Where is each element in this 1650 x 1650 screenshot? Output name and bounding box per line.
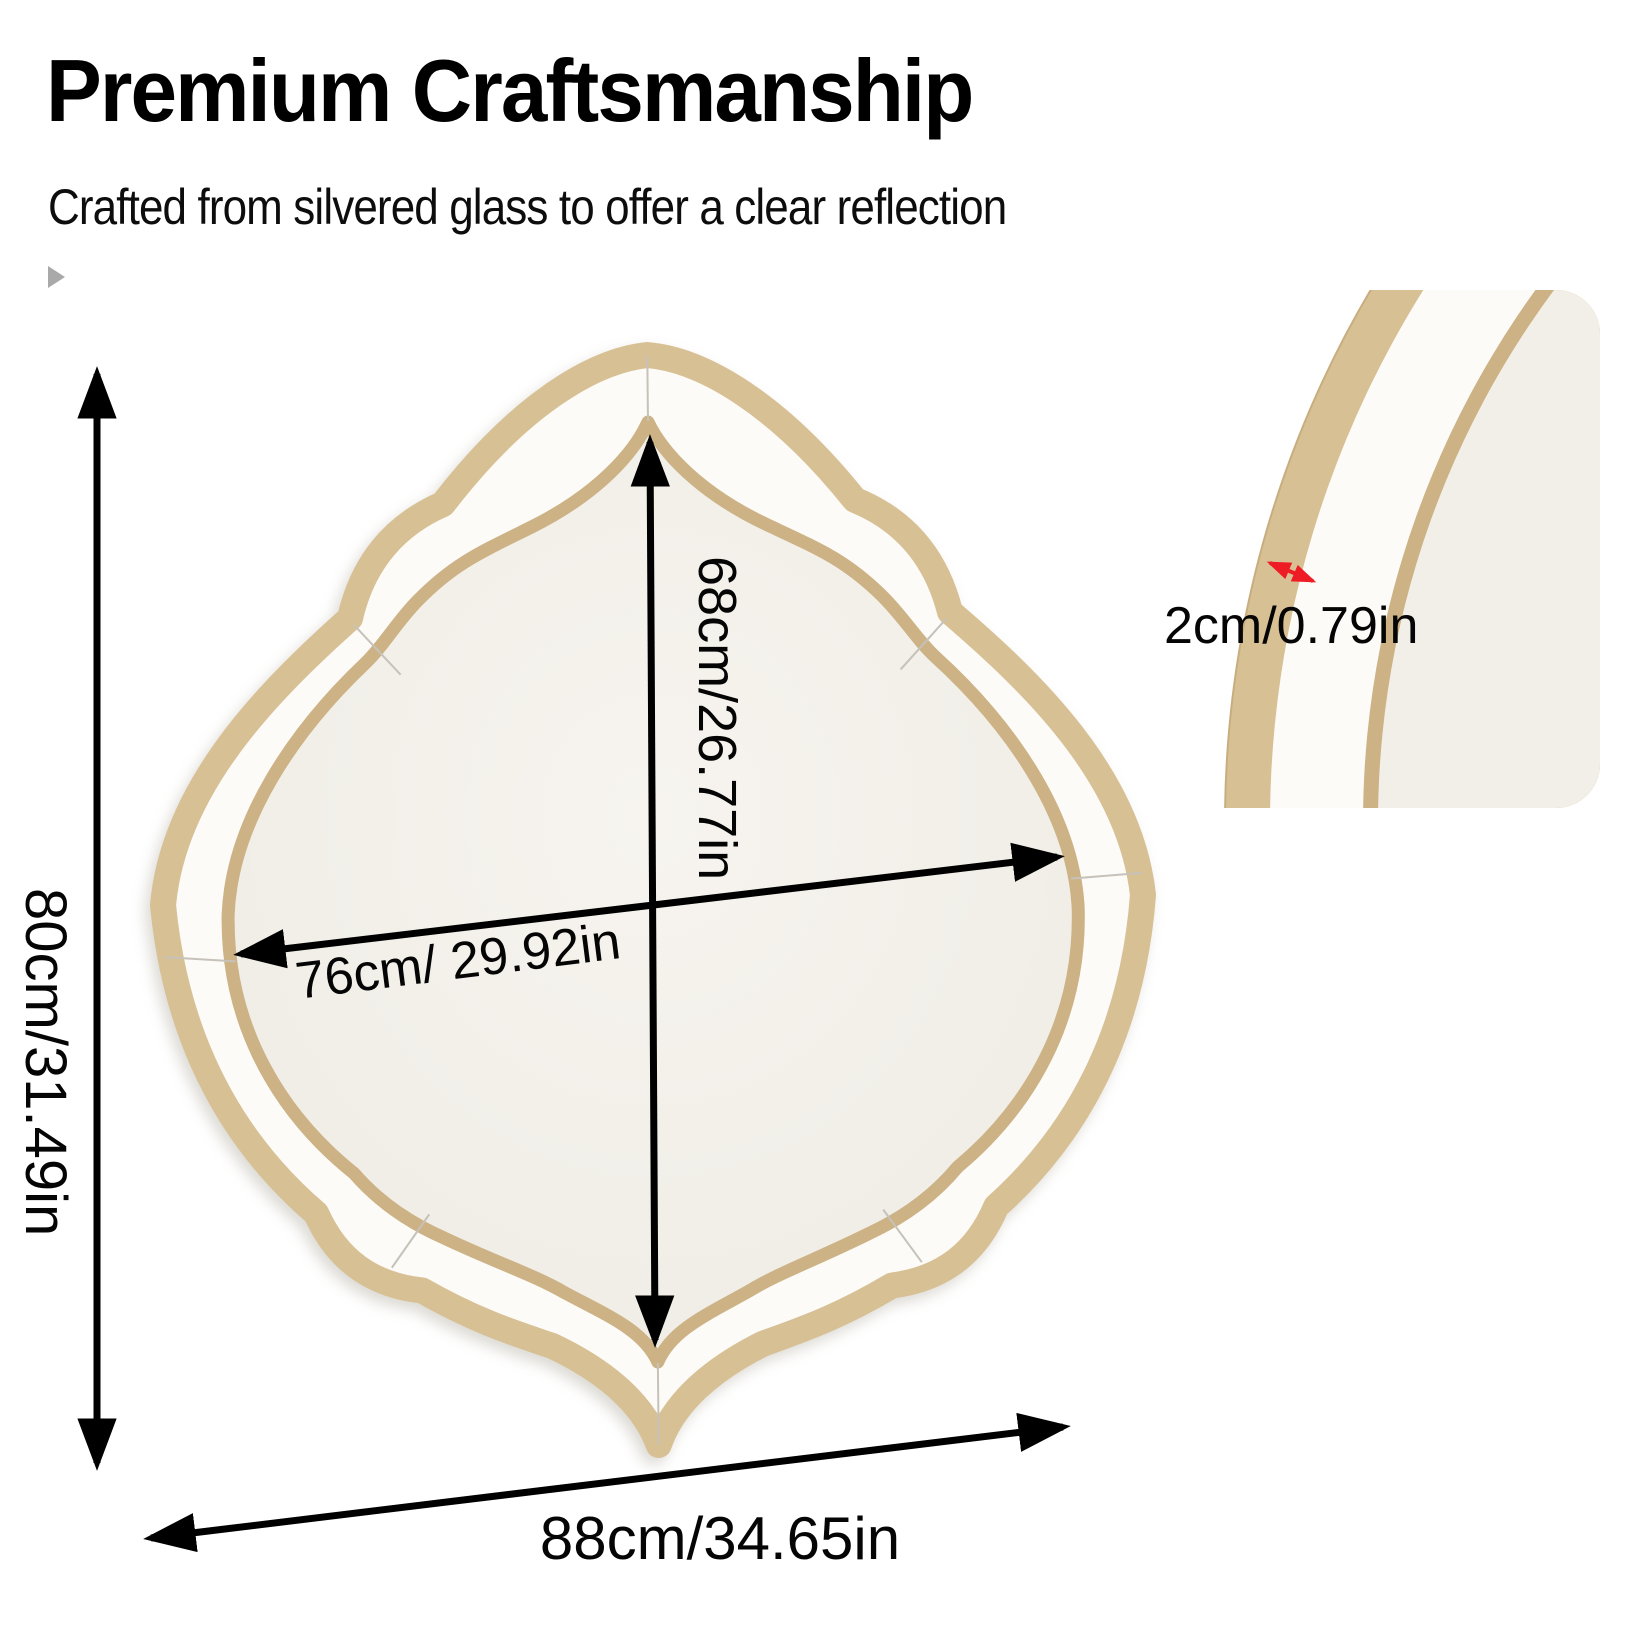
frame-closeup-inset: 2cm/0.79in [1150,290,1600,808]
dimension-arrows-layer [0,0,1650,1650]
frame-closeup-arcs [1150,290,1600,808]
frame-thickness-label: 2cm/0.79in [1164,596,1418,656]
overall-width-label: 88cm/34.65in [460,1504,980,1573]
mirror-height-arrow [650,442,655,1340]
mirror-height-label: 68cm/26.77in [686,556,748,880]
product-dimension-infographic: Premium Craftsmanship Crafted from silve… [0,0,1650,1650]
overall-height-label: 80cm/31.49in [12,888,79,1236]
